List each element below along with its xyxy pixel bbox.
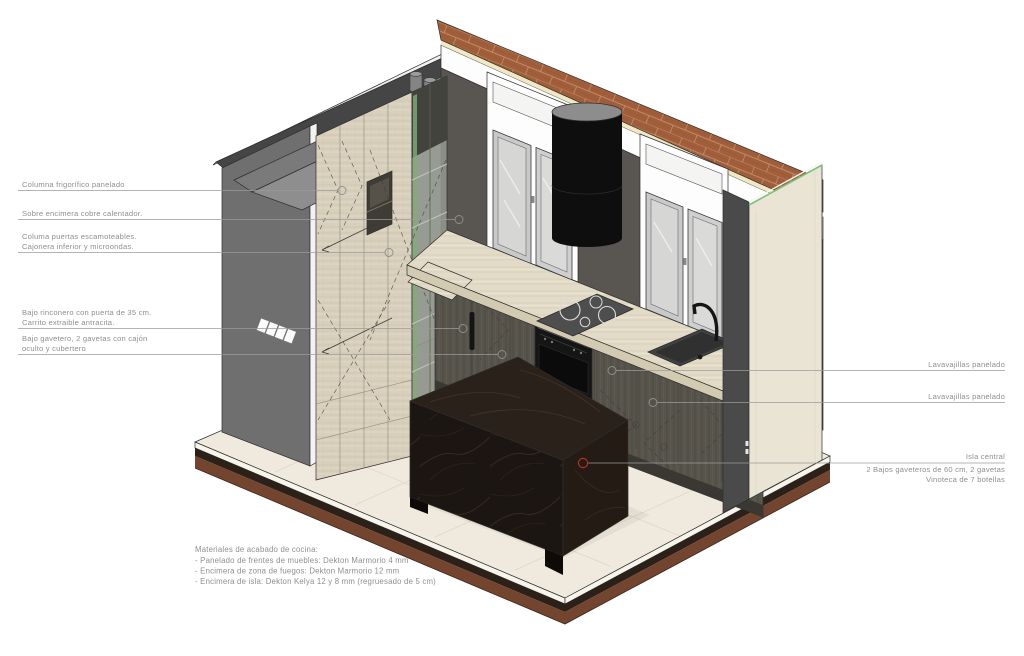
return-wall-dark-edge [723, 190, 749, 513]
cream-end-panel [749, 165, 822, 499]
annotation-label: Isla central [966, 452, 1005, 461]
counter-niche [367, 171, 392, 235]
cabinet-handle [470, 312, 475, 350]
drawing-canvas: Columna frigorífico panelado Sobre encim… [0, 0, 1024, 656]
annotation-label: Carrito extraible antracita. [22, 318, 115, 327]
annotation-label: 2 Bajos gaveteros de 60 cm, 2 gavetas [866, 465, 1005, 474]
hinge-mark [746, 441, 749, 446]
annotation-label: Cajonera inferior y microondas. [22, 242, 134, 251]
annotation-label: Columa puertas escamoteables. [22, 232, 137, 241]
right-return-wall [723, 162, 822, 513]
annotation-label: Bajo rinconero con puerta de 35 cm. [22, 308, 151, 317]
hinge-mark [746, 449, 749, 454]
note-item: - Panelado de frentes de muebles: Dekton… [195, 556, 409, 565]
note-item: - Encimera de isla: Dekton Kelya 12 y 8 … [195, 577, 436, 586]
annotation-label: Bajo gavetero, 2 gavetas con cajón [22, 334, 147, 343]
window-handle [684, 258, 687, 265]
window-right [640, 134, 728, 342]
window-handle [532, 196, 535, 203]
extractor-hood [552, 103, 622, 247]
kitchen-axonometric-drawing: Columna frigorífico panelado Sobre encim… [0, 0, 1024, 656]
annotation-label: Vinoteca de 7 botellas [926, 475, 1005, 484]
note-heading: Materiales de acabado de cocina: [195, 545, 318, 554]
annotation-label: oculto y cubertero [22, 344, 86, 353]
note-item: - Encimera de zona de fuegos: Dekton Mar… [195, 567, 399, 576]
annotation-label: Sobre encimera cobre calentador. [22, 209, 142, 218]
annotation-label: Lavavajillas panelado [928, 392, 1005, 401]
annotation-label: Columna frigorífico panelado [22, 180, 125, 189]
annotation-label: Lavavajillas panelado [928, 360, 1005, 369]
